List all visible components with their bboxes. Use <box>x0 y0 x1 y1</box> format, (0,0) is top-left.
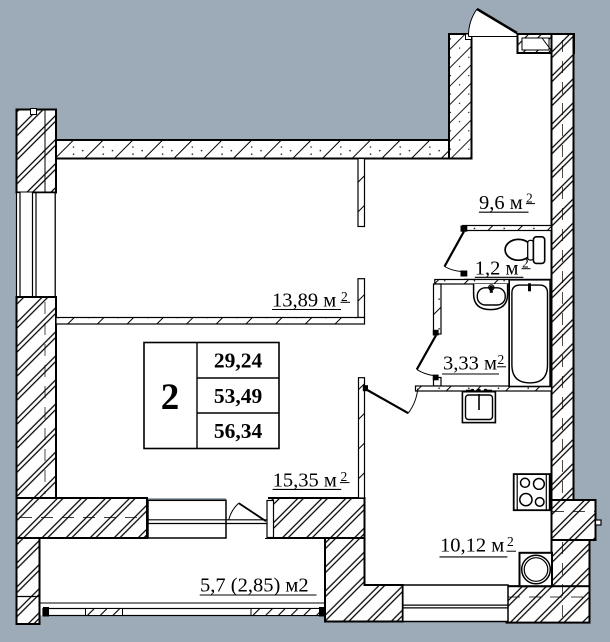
svg-text:29,24: 29,24 <box>214 349 263 373</box>
svg-text:1,2 м: 1,2 м <box>475 258 519 280</box>
svg-text:2: 2 <box>341 469 348 484</box>
svg-text:10,12 м: 10,12 м <box>440 535 504 557</box>
svg-text:2: 2 <box>341 289 348 304</box>
svg-text:2: 2 <box>507 534 514 549</box>
svg-text:2: 2 <box>498 352 505 367</box>
svg-text:3,33 м: 3,33 м <box>443 353 497 375</box>
svg-text:2: 2 <box>161 377 180 418</box>
svg-text:15,35 м: 15,35 м <box>273 470 337 492</box>
svg-text:53,49: 53,49 <box>214 384 262 408</box>
svg-text:56,34: 56,34 <box>214 419 263 443</box>
svg-text:9,6 м: 9,6 м <box>479 192 523 214</box>
svg-text:5,7 (2,85) м2: 5,7 (2,85) м2 <box>200 575 309 597</box>
svg-text:13,89 м: 13,89 м <box>272 290 336 312</box>
